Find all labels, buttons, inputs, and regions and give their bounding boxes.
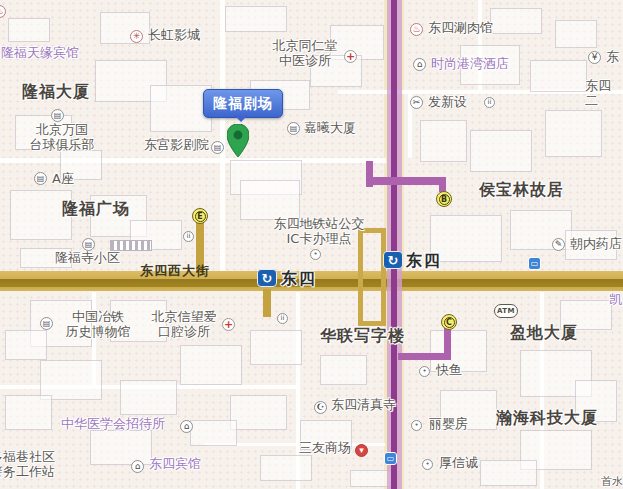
bank-icon[interactable]: ¥: [588, 51, 601, 64]
building-outline: [8, 18, 50, 42]
longfu-plaza-label[interactable]: 隆福广场: [62, 200, 130, 218]
houxincheng-label[interactable]: 厚信诚: [439, 456, 478, 471]
longfu-building-label[interactable]: 隆福大厦: [22, 83, 90, 101]
building-outline: [320, 355, 367, 385]
minor-street: [0, 158, 386, 163]
restaurant-glyph: ♨: [0, 7, 4, 16]
longfu-tianyuan-hotel-label[interactable]: 隆福天缘宾馆: [1, 46, 79, 61]
subway-station-icon[interactable]: ↻: [383, 251, 403, 269]
houbaolin-residence-label[interactable]: 侯宝林故居: [479, 181, 564, 199]
building-outline: [100, 12, 150, 44]
medical-cross-icon[interactable]: +: [344, 50, 357, 63]
shishang-gangwan-hotel-label[interactable]: 时尚港湾酒店: [431, 57, 509, 72]
building-outline: [260, 455, 312, 481]
restaurant-icon-edge[interactable]: ♨: [0, 5, 6, 18]
pencil-icon[interactable]: ✎: [552, 238, 565, 251]
building-glyph: ▤: [43, 320, 51, 328]
beijing-wanguo-billiards-label[interactable]: 北京万国 台球俱乐部: [25, 123, 99, 152]
building-outline: [350, 470, 392, 487]
bank-glyph: ¥: [592, 53, 598, 62]
building-glyph: ▤: [85, 241, 93, 249]
building-glyph: ▤: [54, 112, 62, 120]
subway-branch-to-exit-b: [366, 177, 446, 185]
building-outline: [225, 6, 287, 32]
zhonghua-medical-hostel-label[interactable]: 中华医学会招待所: [61, 417, 165, 432]
building-outline: [470, 130, 532, 172]
subway-exit-e-marker[interactable]: E: [192, 208, 208, 224]
medical-glyph: +: [346, 51, 355, 62]
jiaxi-building-label[interactable]: 嘉曦大厦: [304, 121, 356, 136]
exit-letter: E: [195, 211, 206, 222]
hotel-glyph: ⌂: [417, 60, 423, 69]
map-pin-icon[interactable]: [227, 124, 249, 162]
mosque-icon[interactable]: ☪: [314, 401, 327, 414]
building-outline: [5, 330, 47, 360]
building-outline: [480, 460, 537, 486]
xinwangai-dental-label[interactable]: 北京信望爱 口腔诊所: [142, 310, 226, 339]
dongsi-station-line5-label[interactable]: 东四: [406, 252, 442, 270]
changhong-cinema-label[interactable]: 长虹影城: [148, 28, 200, 43]
place-callout[interactable]: 隆福剧场: [203, 89, 283, 118]
shoushui-partial-label[interactable]: 首水: [601, 476, 623, 488]
liyingfang-label[interactable]: 丽婴房: [429, 417, 468, 432]
kuaiyu-label[interactable]: 快鱼: [436, 363, 462, 378]
sanyou-mall-label-label[interactable]: 三友商场: [299, 441, 351, 456]
mall-glyph: ▾: [359, 446, 364, 455]
mall-icon[interactable]: ▾: [355, 444, 368, 457]
dot-glyph: •: [425, 461, 429, 468]
subway-branch-exit-c-horizontal: [398, 353, 451, 360]
duofuxiang-police-station-label[interactable]: 多福巷社区 警务工作站: [0, 450, 55, 479]
dot-icon-ic-point[interactable]: •: [310, 249, 321, 260]
dongsi-hotel-label[interactable]: 东四宾馆: [149, 457, 201, 472]
billiards-club-icon[interactable]: ▤: [51, 109, 64, 122]
people-glyph: ii: [281, 315, 285, 322]
building-outline: [90, 430, 152, 465]
building-outline: [250, 330, 302, 365]
bank-east-partial-label[interactable]: 东: [606, 50, 619, 65]
community-icon[interactable]: ▤: [82, 238, 95, 251]
subway-exit-b-marker[interactable]: B: [436, 191, 452, 207]
dongsi-mosque-label-label[interactable]: 东四清真寺: [331, 398, 396, 413]
building-outline: [490, 8, 542, 34]
museum-icon[interactable]: ▤: [40, 317, 53, 330]
building-glyph: ▤: [37, 175, 45, 183]
restaurant-glyph: ♨: [412, 25, 420, 34]
subway-branch-exit-b-stub: [439, 177, 446, 192]
people-glyph: ii: [187, 233, 191, 240]
dot-icon-liyingfang[interactable]: •: [411, 420, 422, 431]
map-canvas[interactable]: 隆福剧场 隆福天缘宾馆长虹影城北京同仁堂 中医诊所东四涮肉馆时尚港湾酒店东东四二…: [0, 0, 623, 489]
hotel-bed-icon-3[interactable]: ⌂: [131, 460, 144, 473]
kai-partial-label[interactable]: 凯: [609, 293, 622, 308]
theater-icon[interactable]: ▤: [211, 141, 224, 154]
dongsi-ertiao-street-label[interactable]: 东四二: [585, 79, 623, 108]
dongsi-shuanrou-restaurant-label[interactable]: 东四涮肉馆: [428, 21, 493, 36]
building-icon-jiaxi[interactable]: ▤: [287, 122, 300, 135]
hotel-bed-icon-2[interactable]: ⌂: [180, 420, 193, 433]
atm-icon[interactable]: ATM: [494, 304, 518, 318]
subway-station-icon[interactable]: ↻: [257, 269, 277, 287]
pencil-glyph: ✎: [555, 240, 563, 249]
bus-stop-icon[interactable]: ▭: [528, 257, 541, 270]
bus-route-south-stub: [263, 289, 271, 317]
building-outline: [420, 120, 467, 162]
people-pair-icon-3[interactable]: ii: [277, 313, 288, 324]
bus-stop-icon[interactable]: ▭: [384, 452, 397, 465]
donggong-theater-label[interactable]: 东宫影剧院: [144, 138, 209, 153]
scissors-glyph: ✂: [413, 98, 421, 107]
building-outline: [40, 360, 102, 400]
subway-line5: [391, 0, 397, 489]
cinema-icon[interactable]: ✳: [130, 30, 143, 43]
building-glyph: ▤: [214, 144, 222, 152]
building-outline: [120, 380, 177, 415]
dot-glyph: •: [422, 368, 426, 375]
block-a-label[interactable]: A座: [52, 172, 74, 187]
subway-exit-c-marker[interactable]: C: [441, 314, 457, 330]
dot-icon-houxincheng[interactable]: •: [422, 459, 433, 470]
building-outline: [555, 20, 597, 48]
scissors-icon[interactable]: ✂: [410, 96, 423, 109]
dot-icon-kuaiyu[interactable]: •: [419, 366, 430, 377]
building-outline: [190, 420, 237, 446]
building-icon-a[interactable]: ▤: [34, 172, 47, 185]
people-glyph: ii: [488, 99, 492, 106]
chaonei-pharmacy-label[interactable]: 朝内药店: [570, 237, 622, 252]
hotel-glyph: ⌂: [184, 422, 190, 431]
people-pair-icon-2[interactable]: ii: [183, 231, 194, 242]
cinema-glyph: ✳: [133, 32, 141, 41]
dongsi-metro-ic-point-label[interactable]: 东四地铁站公交 IC卡办理点: [263, 217, 375, 246]
faxinshe-label[interactable]: 发新设: [428, 95, 467, 110]
hotel-bed-icon[interactable]: ⌂: [413, 58, 426, 71]
hualian-office-building-label[interactable]: 华联写字楼: [320, 327, 405, 345]
medical-glyph: +: [224, 319, 233, 330]
dongsi-station-road-label[interactable]: 东四: [281, 270, 317, 288]
mosque-glyph: ☪: [316, 403, 324, 412]
longfusi-community-label[interactable]: 隆福寺小区: [55, 251, 120, 266]
tongrentang-clinic-label[interactable]: 北京同仁堂 中医诊所: [263, 39, 347, 68]
exit-letter: B: [439, 194, 450, 205]
china-metallurgy-museum-label[interactable]: 中国冶铁 历史博物馆: [58, 310, 138, 339]
dot-glyph: •: [313, 251, 317, 258]
dot-glyph: •: [414, 422, 418, 429]
building-outline: [530, 60, 587, 92]
building-outline: [230, 395, 287, 430]
people-pair-icon-1[interactable]: ii: [484, 97, 495, 108]
place-callout-label: 隆福剧场: [213, 95, 273, 113]
dongsi-west-street-label[interactable]: 东四西大街: [140, 264, 210, 279]
hanhai-tech-building-label[interactable]: 瀚海科技大厦: [496, 409, 598, 427]
yingdi-building-label[interactable]: 盈地大厦: [510, 324, 578, 342]
building-outline: [180, 345, 242, 385]
building-outline: [240, 180, 300, 220]
exit-letter: C: [444, 317, 455, 328]
hotel-glyph: ⌂: [135, 462, 141, 471]
building-outline: [545, 110, 602, 157]
building-glyph: ▤: [290, 125, 298, 133]
building-outline: [5, 395, 52, 430]
restaurant-icon[interactable]: ♨: [410, 23, 423, 36]
medical-cross-icon-2[interactable]: +: [222, 318, 235, 331]
minor-street: [220, 0, 225, 272]
